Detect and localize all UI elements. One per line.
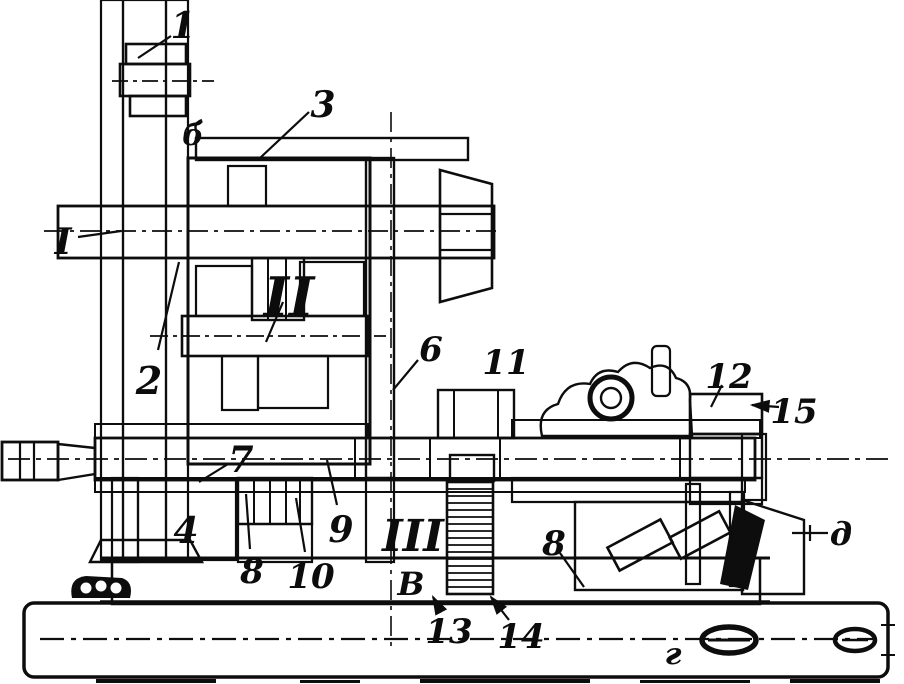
label-part-1: 1 xyxy=(170,5,195,47)
leader-part-9 xyxy=(327,460,337,505)
column-inner-wall xyxy=(166,0,188,560)
label-point-g: г xyxy=(665,637,682,672)
bed-slot-large xyxy=(702,627,756,653)
gear-block-left xyxy=(196,266,252,316)
input-coupling xyxy=(2,442,95,480)
figure-gearbox-section: 123467889101112131415IIIIIIбВгд xyxy=(0,0,904,684)
label-part-8a: 8 xyxy=(239,552,264,592)
drawing-canvas: 123467889101112131415IIIIIIбВгд xyxy=(0,0,904,684)
label-point-b: б xyxy=(182,118,204,153)
column-cavity xyxy=(123,0,166,560)
label-part-2: 2 xyxy=(135,358,162,403)
bed-right-tick xyxy=(881,622,895,658)
oiler-ball-ring xyxy=(590,377,632,419)
point-d-marker xyxy=(792,525,828,541)
label-point-v: В xyxy=(396,565,424,603)
leader-part-6 xyxy=(393,360,418,390)
gear-block-lower xyxy=(258,356,328,408)
label-part-7: 7 xyxy=(228,439,253,481)
screw-threads xyxy=(448,489,492,587)
label-part-6: 6 xyxy=(419,330,443,370)
label-shaft-I: I xyxy=(54,221,73,263)
bearing-cap-11 xyxy=(438,390,514,438)
locating-pin xyxy=(652,346,670,396)
lower-shaft-group xyxy=(2,420,888,492)
gear-1-hub xyxy=(120,64,190,96)
leader-part-8a xyxy=(246,494,250,549)
label-part-15: 15 xyxy=(770,392,817,432)
ground-line xyxy=(96,679,880,683)
label-part-12: 12 xyxy=(705,357,752,397)
label-part-10: 10 xyxy=(287,557,335,597)
black-wedge xyxy=(720,505,765,590)
gear-8-10-block xyxy=(238,478,312,562)
label-part-9: 9 xyxy=(328,509,353,551)
label-part-8b: 8 xyxy=(541,524,566,564)
base-roller-detail xyxy=(71,576,131,598)
label-shaft-III: III xyxy=(380,511,445,562)
gear-1 xyxy=(112,44,214,116)
label-point-d: д xyxy=(830,515,852,553)
bracket-leg-1 xyxy=(686,484,700,584)
left-column xyxy=(71,0,214,598)
arm-bracket xyxy=(195,120,468,160)
label-shaft-II: II xyxy=(262,265,316,329)
label-part-13: 13 xyxy=(425,612,472,652)
housing-bottom-flange xyxy=(100,558,770,604)
leader-part-3 xyxy=(260,112,309,158)
label-part-3: 3 xyxy=(310,84,335,126)
label-part-4: 4 xyxy=(173,510,198,552)
label-part-11: 11 xyxy=(482,343,529,383)
roller-1 xyxy=(607,519,672,570)
bevel-gear xyxy=(440,170,492,302)
label-part-14: 14 xyxy=(497,617,544,657)
upper-bearing-block xyxy=(228,166,266,206)
bore-upper-left xyxy=(95,424,368,438)
adjusting-screw xyxy=(447,455,494,594)
